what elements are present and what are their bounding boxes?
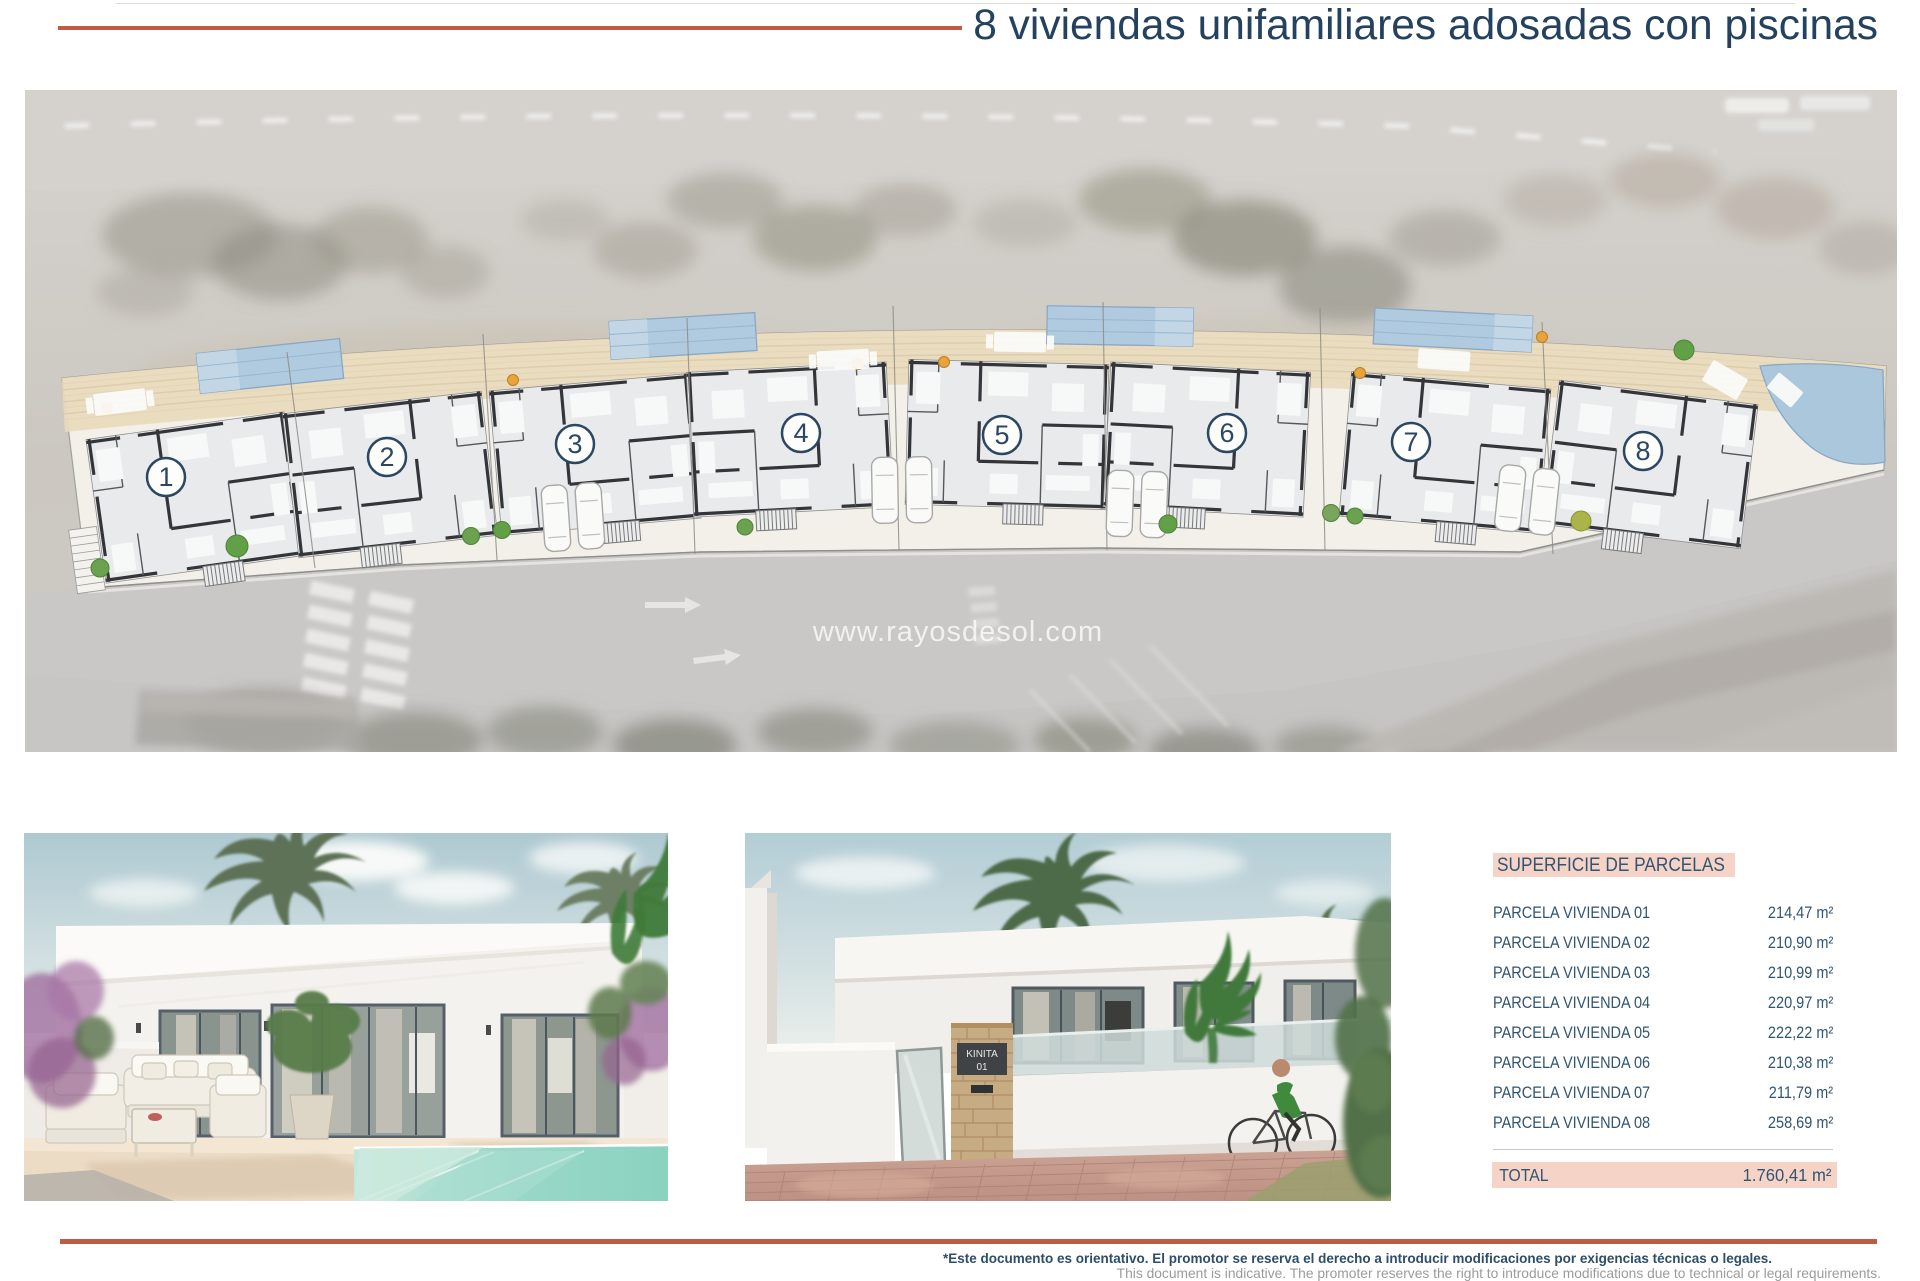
svg-text:5: 5 — [994, 420, 1009, 450]
svg-text:7: 7 — [1403, 427, 1418, 457]
svg-text:01: 01 — [976, 1062, 988, 1073]
svg-text:KINITA: KINITA — [966, 1049, 998, 1060]
svg-text:1: 1 — [158, 462, 173, 492]
svg-text:8: 8 — [1635, 436, 1650, 466]
svg-text:6: 6 — [1219, 418, 1234, 448]
svg-text:4: 4 — [793, 418, 808, 448]
svg-text:2: 2 — [379, 442, 394, 472]
svg-text:3: 3 — [567, 429, 582, 459]
svg-text:www.rayosdesol.com: www.rayosdesol.com — [812, 616, 1103, 648]
